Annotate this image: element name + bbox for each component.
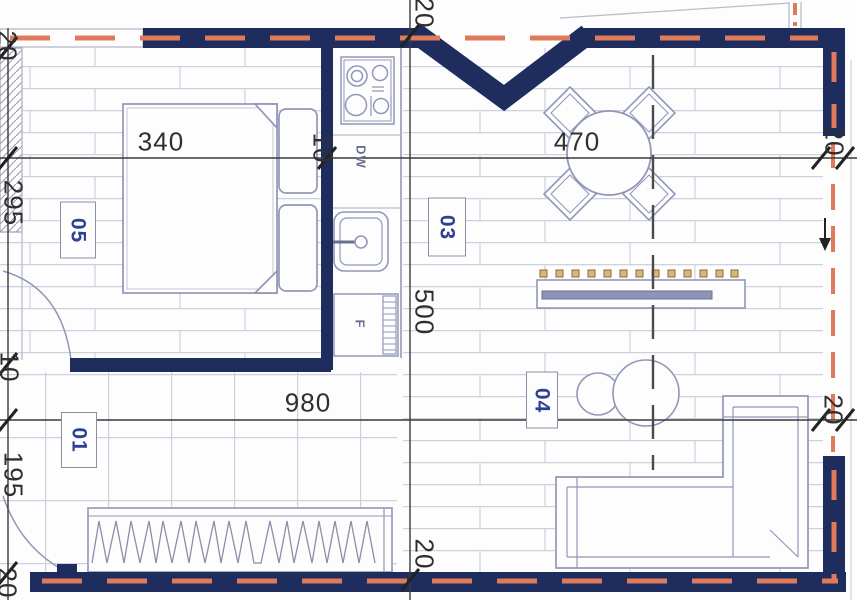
dim-10-top: 10 — [307, 133, 338, 164]
dim-20-bottom-left: 20 — [0, 568, 23, 599]
room-label-01: 01 — [61, 412, 97, 468]
ladder-hatch — [383, 302, 396, 350]
wall-door-stub — [57, 564, 77, 592]
dim-340: 340 — [138, 127, 184, 158]
dim-295: 295 — [0, 180, 29, 226]
dim-470: 470 — [554, 127, 600, 158]
dim-20-top-left: 20 — [0, 31, 23, 62]
dim-195: 195 — [0, 452, 29, 498]
fridge-label: F — [353, 320, 368, 329]
stove — [341, 57, 394, 124]
ladder-hatch — [383, 296, 396, 354]
room-number: 01 — [67, 427, 91, 452]
dim-20-bottom-center: 20 — [409, 539, 440, 570]
pillow — [279, 205, 317, 291]
room-number: 04 — [530, 387, 554, 412]
dim-20-mid-right: 20 — [818, 395, 849, 426]
floor-plan: 340 10 470 20 20 500 20 980 20 20 295 10… — [0, 0, 857, 600]
room-label-04: 04 — [526, 372, 558, 429]
room-number: 05 — [66, 217, 90, 242]
dim-980: 980 — [285, 388, 331, 419]
dim-20-top-right: 20 — [819, 126, 850, 157]
dim-10-left: 10 — [0, 352, 25, 383]
tv-icon — [542, 291, 712, 299]
room-number: 03 — [435, 214, 459, 239]
dishwasher-label: DW — [354, 145, 369, 169]
dim-20-top-center: 20 — [409, 0, 440, 28]
wardrobe — [88, 508, 392, 572]
dim-500: 500 — [409, 289, 440, 335]
faucet-icon — [355, 236, 367, 248]
sink — [327, 212, 388, 271]
room-label-03: 03 — [428, 198, 466, 257]
room-label-05: 05 — [60, 202, 96, 259]
